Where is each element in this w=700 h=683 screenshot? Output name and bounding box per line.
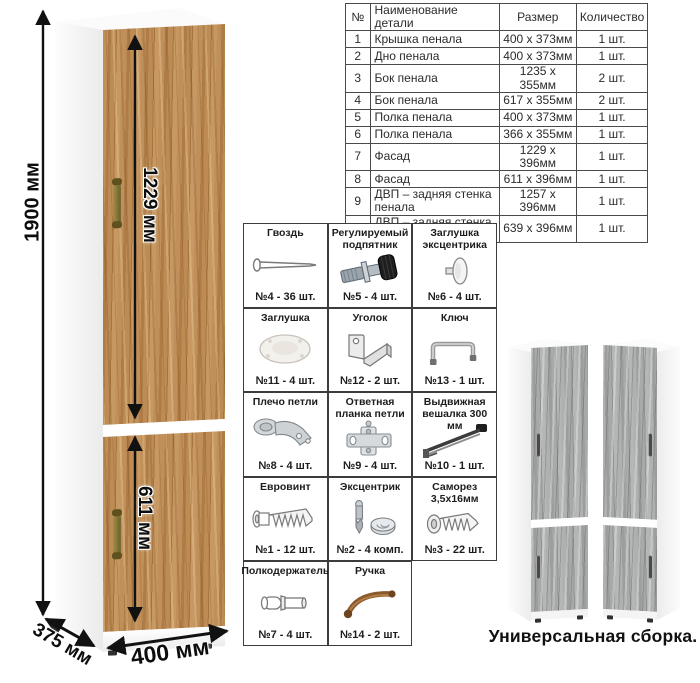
hardware-item: Евровинт №1 - 12 шт.: [243, 477, 328, 562]
part-name: Фасад: [370, 171, 499, 188]
hardware-item-name: Ручка: [355, 565, 385, 577]
hardware-item-count: №11 - 4 шт.: [256, 375, 316, 387]
hardware-item: Выдвижная вешалка 300 мм №10 - 1 шт.: [412, 392, 497, 477]
universal-assembly-caption: Универсальная сборка.: [486, 626, 700, 647]
variant-left-foot: [535, 618, 541, 622]
part-num: 6: [346, 126, 371, 143]
hardware-item-count: №3 - 22 шт.: [425, 544, 485, 556]
hardware-item-name: Плечо петли: [253, 396, 318, 408]
part-size: 400 x 373мм: [499, 31, 577, 48]
cabinet-side-panel: [55, 20, 103, 654]
variant-right-lower-handle: [648, 555, 652, 578]
variant-left-lower-door: [531, 525, 588, 612]
part-qty: 1 шт.: [577, 188, 648, 215]
cam-lock-icon: [335, 493, 405, 545]
table-row: 1Крышка пенала400 x 373мм1 шт.: [346, 31, 648, 48]
hardware-item-count: №5 - 4 шт.: [343, 291, 397, 303]
variant-right-upper-door: [603, 345, 657, 520]
part-num: 3: [346, 65, 371, 92]
hardware-item: Ключ №13 - 1 шт.: [412, 308, 497, 393]
lower-door-dimension-label: 611 мм: [133, 486, 155, 550]
part-qty: 1 шт.: [577, 143, 648, 170]
hardware-item-name: Саморез 3,5х16мм: [414, 481, 495, 505]
variant-left-upper-handle: [536, 434, 540, 457]
lower-door-handle: [113, 512, 121, 556]
hardware-item: Плечо петли №8 - 4 шт.: [243, 392, 328, 477]
hardware-item: Уголок №12 - 2 шт.: [328, 308, 413, 393]
hardware-item: Ответная планка петли №9 - 4 шт.: [328, 392, 413, 477]
part-size: 639 x 396мм: [499, 215, 577, 242]
part-size: 366 x 355мм: [499, 126, 577, 143]
pullout-hanger-icon: [420, 420, 490, 460]
hardware-item-name: Евровинт: [260, 481, 311, 493]
part-num: 5: [346, 109, 371, 126]
variant-right-foot: [607, 615, 613, 619]
corner-bracket-icon: [335, 324, 405, 376]
hardware-item-name: Заглушка: [261, 312, 310, 324]
part-size: 617 x 355мм: [499, 92, 577, 109]
hardware-item: Ручка №14 - 2 шт.: [328, 561, 413, 646]
variant-left-side-panel: [508, 340, 531, 625]
part-name: Крышка пенала: [370, 31, 499, 48]
hardware-grid: Гвоздь №4 - 36 шт. Регулируемый подпятни…: [243, 223, 497, 646]
table-row: 2Дно пенала400 x 373мм1 шт.: [346, 48, 648, 65]
part-qty: 1 шт.: [577, 215, 648, 242]
part-num: 1: [346, 31, 371, 48]
cabinet-front-face: [103, 24, 225, 652]
shelf-pin-icon: [250, 577, 320, 629]
hardware-item-name: Гвоздь: [267, 227, 304, 239]
part-size: 400 x 373мм: [499, 109, 577, 126]
hardware-item: Заглушка эксцентрика №6 - 4 шт.: [412, 223, 497, 308]
part-size: 1257 x 396мм: [499, 188, 577, 215]
hardware-item-name: Полкодержатель: [241, 565, 329, 577]
variant-left-lower-handle: [536, 556, 540, 579]
part-size: 611 x 396мм: [499, 171, 577, 188]
part-qty: 1 шт.: [577, 48, 648, 65]
variant-right-upper-handle: [648, 433, 652, 456]
variant-right-front: [603, 345, 657, 620]
hardware-item-name: Уголок: [353, 312, 388, 324]
header-qty: Количество: [577, 4, 648, 31]
table-row: 3Бок пенала1235 x 355мм2 шт.: [346, 65, 648, 92]
part-size: 400 x 373мм: [499, 48, 577, 65]
hardware-item-count: №10 - 1 шт.: [425, 460, 485, 472]
cabinet-foot: [108, 650, 117, 655]
variant-right-foot: [647, 618, 653, 622]
header-name: Наименование детали: [370, 4, 499, 31]
hardware-item-count: №6 - 4 шт.: [428, 291, 482, 303]
part-num: 9: [346, 188, 371, 215]
part-qty: 2 шт.: [577, 65, 648, 92]
variant-right-lower-door: [603, 525, 657, 612]
adjustable-foot-icon: [335, 251, 405, 291]
hardware-item-count: №8 - 4 шт.: [258, 460, 312, 472]
height-dimension-label: 1900 мм: [22, 162, 45, 242]
part-qty: 1 шт.: [577, 126, 648, 143]
table-row: 6Полка пенала366 x 355мм1 шт.: [346, 126, 648, 143]
part-name: Бок пенала: [370, 92, 499, 109]
lower-door: [103, 431, 225, 632]
part-size: 1235 x 355мм: [499, 65, 577, 92]
table-row: 7Фасад1229 x 396мм1 шт.: [346, 143, 648, 170]
table-row: 4Бок пенала617 x 355мм2 шт.: [346, 92, 648, 109]
hardware-item-count: №13 - 1 шт.: [425, 375, 485, 387]
part-name: Бок пенала: [370, 65, 499, 92]
part-name: Полка пенала: [370, 126, 499, 143]
part-name: ДВП – задняя стенка пенала: [370, 188, 499, 215]
table-row: 5Полка пенала400 x 373мм1 шт.: [346, 109, 648, 126]
hardware-item: Полкодержатель №7 - 4 шт.: [243, 561, 328, 646]
variant-left-foot: [577, 615, 583, 619]
nail-icon: [250, 239, 320, 291]
parts-table: № Наименование детали Размер Количество …: [345, 3, 648, 243]
part-num: 2: [346, 48, 371, 65]
hardware-item-count: №2 - 4 комп.: [336, 544, 403, 556]
hardware-item-count: №1 - 12 шт.: [255, 544, 315, 556]
variant-left-front: [531, 345, 588, 620]
hardware-item-name: Регулируемый подпятник: [330, 227, 411, 251]
variant-left-upper-door: [531, 345, 588, 520]
euro-screw-icon: [250, 493, 320, 545]
table-row: 8Фасад611 x 396мм1 шт.: [346, 171, 648, 188]
part-num: 7: [346, 143, 371, 170]
part-num: 4: [346, 92, 371, 109]
hardware-item-name: Эксцентрик: [340, 481, 400, 493]
hardware-item: Гвоздь №4 - 36 шт.: [243, 223, 328, 308]
cam-cover-icon: [420, 251, 490, 291]
part-qty: 1 шт.: [577, 109, 648, 126]
hardware-item-count: №7 - 4 шт.: [258, 629, 312, 641]
self-tapping-screw-icon: [420, 504, 490, 544]
hardware-item: Заглушка №11 - 4 шт.: [243, 308, 328, 393]
hardware-item-count: №14 - 2 шт.: [340, 629, 400, 641]
parts-table-header-row: № Наименование детали Размер Количество: [346, 4, 648, 31]
hinge-plate-icon: [335, 420, 405, 460]
hinge-arm-icon: [250, 408, 320, 460]
upper-door-dimension-label: 1229 мм: [138, 167, 160, 243]
plug-cap-icon: [250, 324, 320, 376]
hardware-item: Эксцентрик №2 - 4 комп.: [328, 477, 413, 562]
hardware-item-name: Ключ: [441, 312, 469, 324]
upper-door: [103, 24, 225, 425]
part-num: 8: [346, 171, 371, 188]
variant-right-side-panel: [657, 340, 680, 625]
hardware-item-count: №12 - 2 шт.: [340, 375, 400, 387]
hardware-item-count: №9 - 4 шт.: [343, 460, 397, 472]
part-name: Дно пенала: [370, 48, 499, 65]
hardware-item-name: Выдвижная вешалка 300 мм: [414, 396, 495, 420]
hardware-item: Саморез 3,5х16мм №3 - 22 шт.: [412, 477, 497, 562]
part-name: Фасад: [370, 143, 499, 170]
part-size: 1229 x 396мм: [499, 143, 577, 170]
part-name: Полка пенала: [370, 109, 499, 126]
handle-icon: [335, 577, 405, 629]
part-qty: 2 шт.: [577, 92, 648, 109]
hardware-item: Регулируемый подпятник №5 - 4 шт.: [328, 223, 413, 308]
hardware-item-count: №4 - 36 шт.: [255, 291, 315, 303]
hardware-item-name: Ответная планка петли: [330, 396, 411, 420]
hex-key-icon: [420, 324, 490, 376]
header-size: Размер: [499, 4, 577, 31]
hardware-item-name: Заглушка эксцентрика: [414, 227, 495, 251]
part-qty: 1 шт.: [577, 31, 648, 48]
table-row: 9ДВП – задняя стенка пенала1257 x 396мм1…: [346, 188, 648, 215]
part-qty: 1 шт.: [577, 171, 648, 188]
header-num: №: [346, 4, 371, 31]
upper-door-handle: [113, 181, 121, 225]
